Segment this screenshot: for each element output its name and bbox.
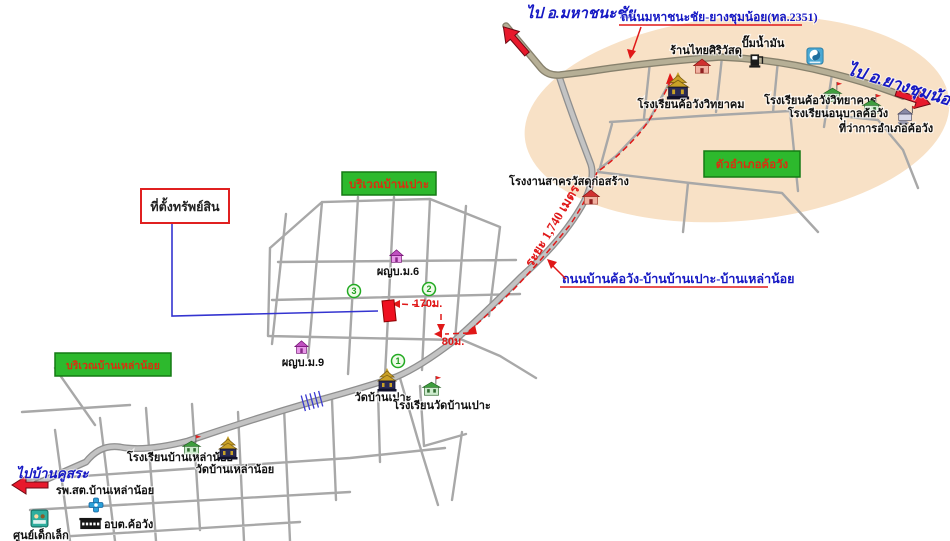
health-station-cross-icon — [89, 498, 103, 512]
place-khowang-wittayakhom-school: โรงเรียนค้อวังวิทยาคม — [637, 97, 745, 111]
place-district-office: ที่ว่าการอำเภอค้อวัง — [839, 120, 933, 135]
place-sakhon-factory: โรงงานสาครวัสดุก่อสร้าง — [508, 174, 629, 189]
place-banlaonoi-school: โรงเรียนบ้านเหล่าน้อย — [126, 450, 233, 464]
area-box-banlaonoi: บริเวณบ้านเหล่าน้อย — [55, 353, 171, 376]
place-headman-m9: ผญบ.ม.9 — [282, 357, 324, 369]
place-thaisiri-shop: ร้านไทยศิริวัสดุ — [670, 43, 742, 58]
place-anuban-khowang-school: โรงเรียนอนุบาลค้อวัง — [787, 106, 888, 121]
property-callout-box: ที่ตั้งทรัพย์สิน — [141, 189, 229, 223]
place-health-station: รพ.สต.บ้านเหล่าน้อย — [56, 484, 154, 497]
place-sao-khowang: อบต.ค้อวัง — [104, 518, 153, 531]
place-childcare-center: ศูนย์เด็กเล็ก — [13, 528, 69, 541]
area-label-khowang-town: ตัวอำเภอค้อวัง — [716, 157, 789, 171]
property-marker — [382, 300, 396, 322]
fuel-brand-logo-icon — [807, 48, 823, 64]
sao-building-icon — [79, 518, 101, 529]
area-label-banpo: บริเวณบ้านเปาะ — [349, 178, 429, 191]
place-wat-banpo-school: โรงเรียนวัดบ้านเปาะ — [392, 398, 491, 412]
place-wat-banlaonoi: วัดบ้านเหล่าน้อย — [196, 463, 275, 476]
direction-mahachanachai: ไป อ.มหาชนะชัย — [526, 4, 636, 22]
area-box-khowang-town: ตัวอำเภอค้อวัง — [704, 151, 800, 177]
highway-label: ถนนมหาชนะชัย-ยางชุมน้อย(ทล.2351) — [621, 10, 818, 25]
marker-1-label: 1 — [395, 356, 400, 366]
route-distance-label: ระยะ 1,740 เมตร — [522, 182, 583, 269]
childcare-icon — [31, 510, 48, 527]
area-box-banpo: บริเวณบ้านเปาะ — [342, 172, 436, 195]
distance-170m-label: 170ม. — [414, 298, 443, 310]
property-label: ที่ตั้งทรัพย์สิน — [150, 197, 220, 214]
direction-bankhusa: ไปบ้านคูสระ — [16, 465, 89, 482]
location-map: ไป อ.มหาชนะชัย ไป อ.ยางชุมน้อย ไปบ้านคูส… — [0, 0, 950, 541]
map-canvas: ไป อ.มหาชนะชัย ไป อ.ยางชุมน้อย ไปบ้านคูส… — [0, 0, 950, 541]
marker-3: 3 — [348, 285, 361, 298]
place-headman-m6: ผญบ.ม.6 — [377, 266, 419, 278]
local-road-label: ถนนบ้านค้อวัง-บ้านบ้านเปาะ-บ้านเหล่าน้อย — [562, 272, 794, 286]
headman-m9-house-icon — [295, 341, 308, 354]
area-label-banlaonoi: บริเวณบ้านเหล่าน้อย — [66, 359, 160, 372]
distance-80m-label: 80ม. — [442, 336, 465, 348]
marker-2-label: 2 — [426, 284, 431, 294]
place-gas-station: ปั๊มน้ำมัน — [742, 35, 785, 50]
wat-banpo-icon — [378, 368, 397, 392]
marker-1: 1 — [392, 355, 405, 368]
property-callout-line — [172, 223, 378, 316]
wat-banlaonoi-icon — [219, 436, 238, 460]
marker-2: 2 — [423, 283, 436, 296]
marker-3-label: 3 — [351, 286, 356, 296]
route-arrowhead-down — [437, 324, 445, 333]
place-khowang-wittayakan-school: โรงเรียนค้อวังวิทยาคาร — [763, 93, 876, 107]
wat-banpo-school-icon — [423, 376, 441, 395]
